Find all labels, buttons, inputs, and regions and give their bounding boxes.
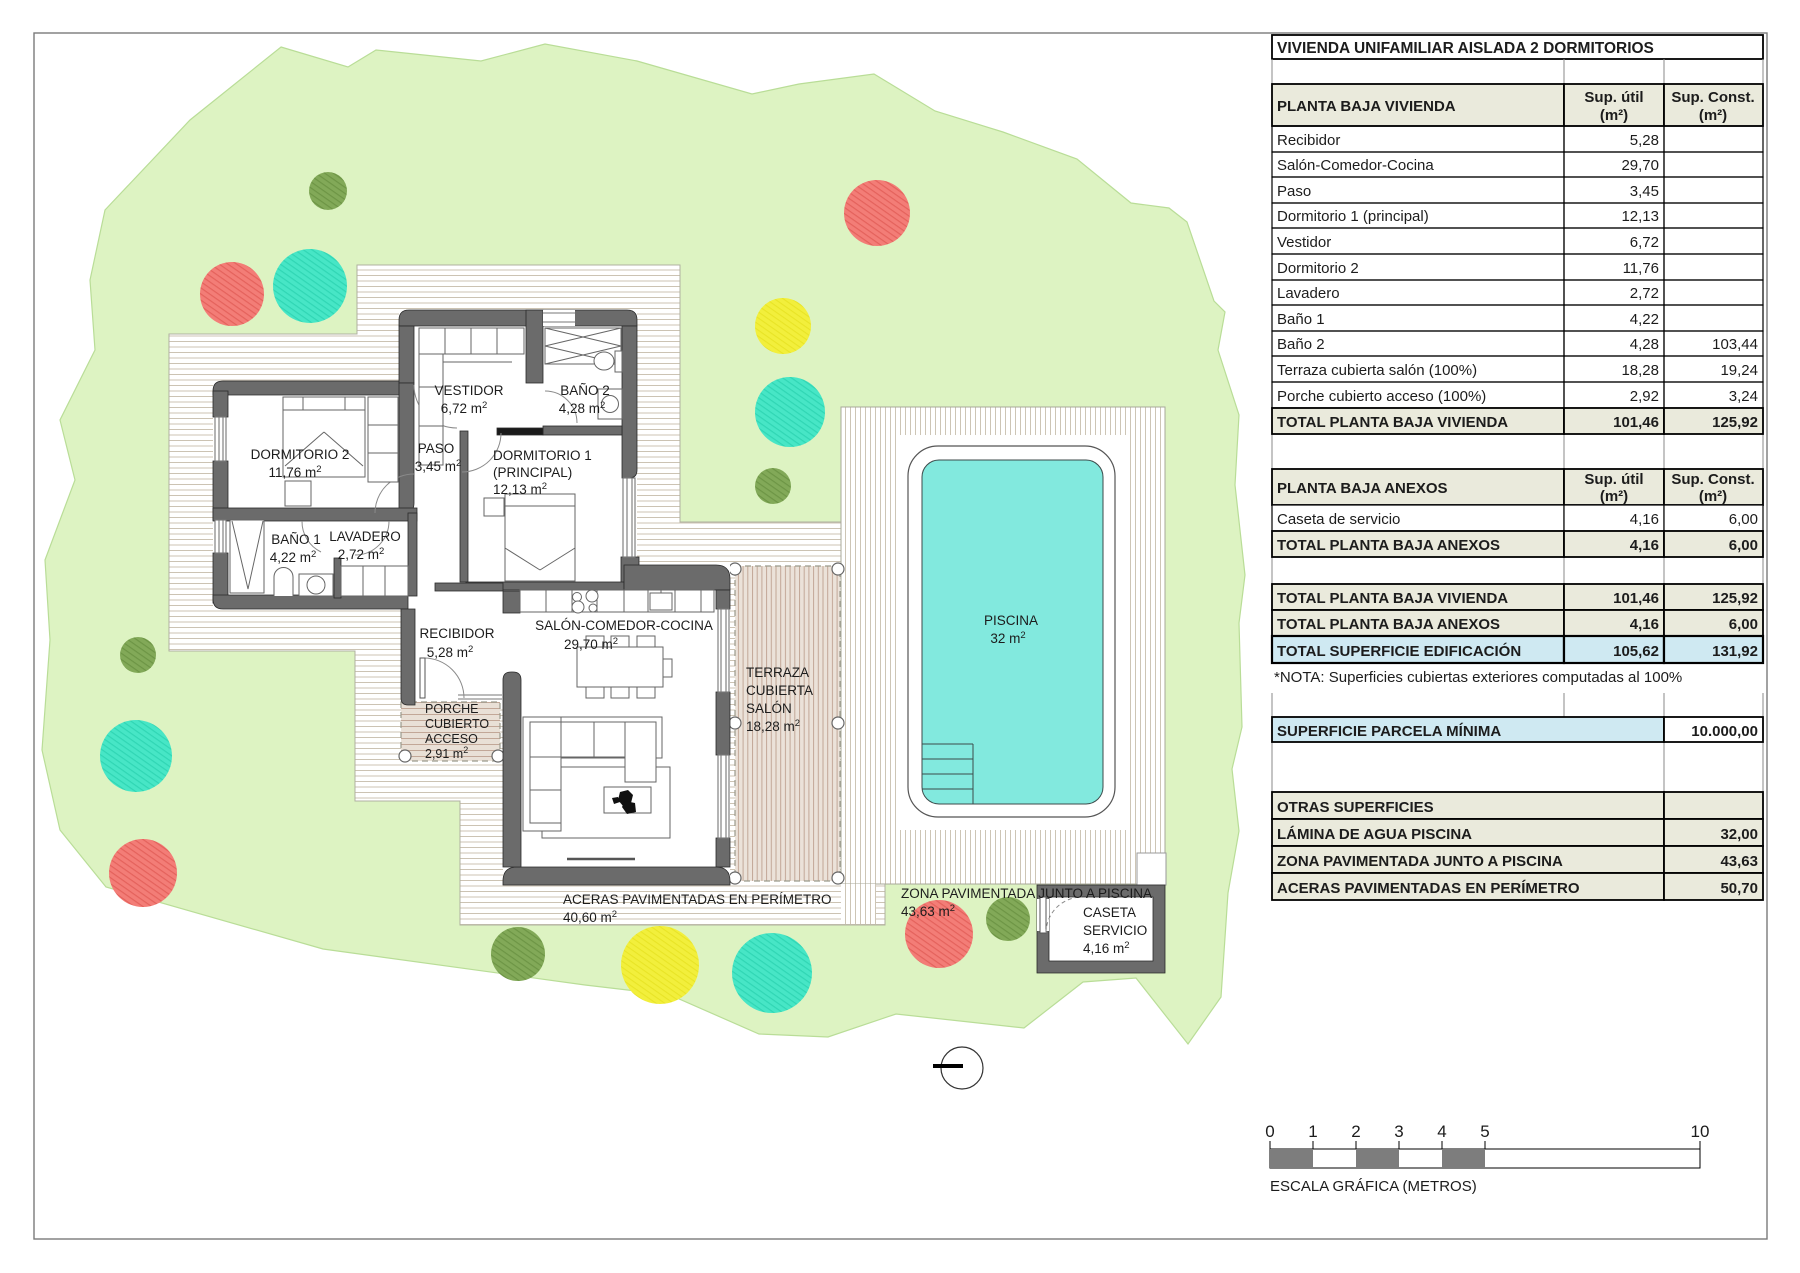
- svg-text:2,72 m2: 2,72 m2: [338, 546, 385, 562]
- svg-text:Terraza cubierta salón (100%): Terraza cubierta salón (100%): [1277, 362, 1477, 379]
- svg-text:PASO: PASO: [418, 441, 455, 456]
- svg-text:(m²): (m²): [1600, 107, 1628, 124]
- svg-text:Baño 1: Baño 1: [1277, 311, 1325, 328]
- svg-text:5: 5: [1480, 1122, 1489, 1141]
- svg-text:OTRAS SUPERFICIES: OTRAS SUPERFICIES: [1277, 799, 1434, 816]
- svg-text:DORMITORIO 2: DORMITORIO 2: [251, 447, 350, 462]
- svg-text:CUBIERTA: CUBIERTA: [746, 683, 813, 698]
- svg-text:PISCINA: PISCINA: [984, 613, 1038, 628]
- svg-text:Porche cubierto acceso (100%): Porche cubierto acceso (100%): [1277, 388, 1486, 405]
- svg-text:3,45: 3,45: [1630, 183, 1659, 200]
- svg-text:Sup. Const.: Sup. Const.: [1671, 89, 1754, 106]
- svg-text:4,16: 4,16: [1630, 616, 1659, 633]
- svg-text:SALÓN-COMEDOR-COCINA: SALÓN-COMEDOR-COCINA: [535, 618, 713, 633]
- svg-text:12,13: 12,13: [1621, 208, 1659, 225]
- svg-text:Salón-Comedor-Cocina: Salón-Comedor-Cocina: [1277, 157, 1434, 174]
- svg-text:2: 2: [1351, 1122, 1360, 1141]
- svg-text:(PRINCIPAL): (PRINCIPAL): [493, 465, 572, 480]
- svg-text:*NOTA: Superficies cubiertas e: *NOTA: Superficies cubiertas exteriores …: [1274, 669, 1682, 686]
- svg-text:0: 0: [1265, 1122, 1274, 1141]
- svg-text:(m²): (m²): [1699, 107, 1727, 124]
- svg-text:10: 10: [1691, 1122, 1710, 1141]
- svg-text:40,60 m2: 40,60 m2: [563, 909, 617, 925]
- svg-text:2,72: 2,72: [1630, 285, 1659, 302]
- svg-text:4,16: 4,16: [1630, 537, 1659, 554]
- svg-text:Vestidor: Vestidor: [1277, 234, 1331, 251]
- svg-text:BAÑO 2: BAÑO 2: [560, 383, 610, 398]
- svg-text:(m²): (m²): [1600, 488, 1628, 505]
- svg-text:2,92: 2,92: [1630, 388, 1659, 405]
- svg-text:4,22 m2: 4,22 m2: [270, 549, 317, 565]
- svg-text:LÁMINA DE AGUA PISCINA: LÁMINA DE AGUA PISCINA: [1277, 826, 1472, 843]
- svg-text:TERRAZA: TERRAZA: [746, 665, 809, 680]
- svg-text:1: 1: [1308, 1122, 1317, 1141]
- svg-text:(m²): (m²): [1699, 488, 1727, 505]
- svg-text:18,28 m2: 18,28 m2: [746, 718, 800, 734]
- svg-text:ACERAS PAVIMENTADAS EN PERÍMET: ACERAS PAVIMENTADAS EN PERÍMETRO: [563, 892, 832, 907]
- svg-text:CUBIERTO: CUBIERTO: [425, 717, 489, 731]
- svg-text:29,70: 29,70: [1621, 157, 1659, 174]
- svg-text:11,76: 11,76: [1623, 260, 1659, 277]
- svg-text:4,16: 4,16: [1630, 511, 1659, 528]
- svg-text:2,91 m2: 2,91 m2: [425, 745, 468, 761]
- svg-text:DORMITORIO 1: DORMITORIO 1: [493, 448, 592, 463]
- svg-text:ACERAS PAVIMENTADAS EN PERÍMET: ACERAS PAVIMENTADAS EN PERÍMETRO: [1277, 880, 1580, 897]
- svg-text:29,70 m2: 29,70 m2: [564, 636, 618, 652]
- svg-text:Baño 2: Baño 2: [1277, 336, 1325, 353]
- svg-text:32,00: 32,00: [1720, 826, 1758, 843]
- svg-text:Lavadero: Lavadero: [1277, 285, 1340, 302]
- svg-text:12,13 m2: 12,13 m2: [493, 481, 547, 497]
- svg-text:Caseta de servicio: Caseta de servicio: [1277, 511, 1400, 528]
- svg-text:ZONA PAVIMENTADA JUNTO A PISCI: ZONA PAVIMENTADA JUNTO A PISCINA: [901, 886, 1152, 901]
- svg-text:VIVIENDA UNIFAMILIAR AISLADA 2: VIVIENDA UNIFAMILIAR AISLADA 2 DORMITORI…: [1277, 40, 1654, 57]
- svg-text:CASETA: CASETA: [1083, 905, 1136, 920]
- svg-text:4,22: 4,22: [1630, 311, 1659, 328]
- svg-text:SERVICIO: SERVICIO: [1083, 923, 1147, 938]
- svg-text:3,45 m2: 3,45 m2: [415, 458, 462, 474]
- svg-text:SUPERFICIE PARCELA MÍNIMA: SUPERFICIE PARCELA MÍNIMA: [1277, 723, 1501, 740]
- svg-text:125,92: 125,92: [1712, 414, 1758, 431]
- svg-text:Sup. útil: Sup. útil: [1584, 471, 1643, 488]
- svg-text:19,24: 19,24: [1720, 362, 1758, 379]
- svg-text:6,00: 6,00: [1729, 537, 1758, 554]
- svg-text:4: 4: [1437, 1122, 1446, 1141]
- svg-text:105,62: 105,62: [1613, 643, 1659, 660]
- svg-text:6,72: 6,72: [1630, 234, 1659, 251]
- svg-text:101,46: 101,46: [1613, 590, 1659, 607]
- svg-text:4,16 m2: 4,16 m2: [1083, 940, 1130, 956]
- svg-text:RECIBIDOR: RECIBIDOR: [419, 626, 494, 641]
- svg-text:4,28: 4,28: [1630, 336, 1659, 353]
- svg-text:TOTAL PLANTA BAJA VIVIENDA: TOTAL PLANTA BAJA VIVIENDA: [1277, 590, 1508, 607]
- svg-text:11,76 m2: 11,76 m2: [268, 464, 321, 480]
- svg-text:Dormitorio 2: Dormitorio 2: [1277, 260, 1359, 277]
- svg-text:103,44: 103,44: [1712, 336, 1758, 353]
- svg-text:18,28: 18,28: [1621, 362, 1659, 379]
- svg-text:TOTAL PLANTA BAJA ANEXOS: TOTAL PLANTA BAJA ANEXOS: [1277, 537, 1500, 554]
- svg-text:PLANTA BAJA ANEXOS: PLANTA BAJA ANEXOS: [1277, 480, 1448, 497]
- svg-text:BAÑO 1: BAÑO 1: [271, 532, 321, 547]
- svg-text:50,70: 50,70: [1720, 880, 1758, 897]
- svg-text:ESCALA GRÁFICA (METROS): ESCALA GRÁFICA (METROS): [1270, 1178, 1477, 1195]
- svg-text:3: 3: [1394, 1122, 1403, 1141]
- svg-text:PLANTA BAJA VIVIENDA: PLANTA BAJA VIVIENDA: [1277, 98, 1456, 115]
- svg-text:Paso: Paso: [1277, 183, 1311, 200]
- svg-text:Sup. útil: Sup. útil: [1584, 89, 1643, 106]
- svg-text:5,28: 5,28: [1630, 132, 1659, 149]
- svg-text:43,63: 43,63: [1720, 853, 1758, 870]
- svg-text:PORCHE: PORCHE: [425, 702, 478, 716]
- svg-text:3,24: 3,24: [1729, 388, 1758, 405]
- svg-text:6,72 m2: 6,72 m2: [441, 400, 488, 416]
- svg-text:Dormitorio 1 (principal): Dormitorio 1 (principal): [1277, 208, 1429, 225]
- svg-text:43,63 m2: 43,63 m2: [901, 903, 955, 919]
- svg-text:TOTAL PLANTA BAJA VIVIENDA: TOTAL PLANTA BAJA VIVIENDA: [1277, 414, 1508, 431]
- svg-text:TOTAL SUPERFICIE EDIFICACIÓN: TOTAL SUPERFICIE EDIFICACIÓN: [1277, 642, 1521, 660]
- svg-text:101,46: 101,46: [1613, 414, 1659, 431]
- svg-text:10.000,00: 10.000,00: [1691, 723, 1758, 740]
- svg-text:131,92: 131,92: [1712, 643, 1758, 660]
- svg-text:VESTIDOR: VESTIDOR: [434, 383, 503, 398]
- svg-text:4,28 m2: 4,28 m2: [559, 400, 606, 416]
- svg-text:ACCESO: ACCESO: [425, 732, 478, 746]
- svg-text:6,00: 6,00: [1729, 616, 1758, 633]
- svg-text:5,28 m2: 5,28 m2: [427, 644, 474, 660]
- svg-text:LAVADERO: LAVADERO: [329, 529, 401, 544]
- svg-text:Sup. Const.: Sup. Const.: [1671, 471, 1754, 488]
- svg-text:125,92: 125,92: [1712, 590, 1758, 607]
- svg-text:TOTAL PLANTA BAJA ANEXOS: TOTAL PLANTA BAJA ANEXOS: [1277, 616, 1500, 633]
- svg-text:ZONA PAVIMENTADA JUNTO A PISCI: ZONA PAVIMENTADA JUNTO A PISCINA: [1277, 853, 1563, 870]
- svg-text:6,00: 6,00: [1729, 511, 1758, 528]
- svg-text:SALÓN: SALÓN: [746, 701, 792, 716]
- svg-text:Recibidor: Recibidor: [1277, 132, 1340, 149]
